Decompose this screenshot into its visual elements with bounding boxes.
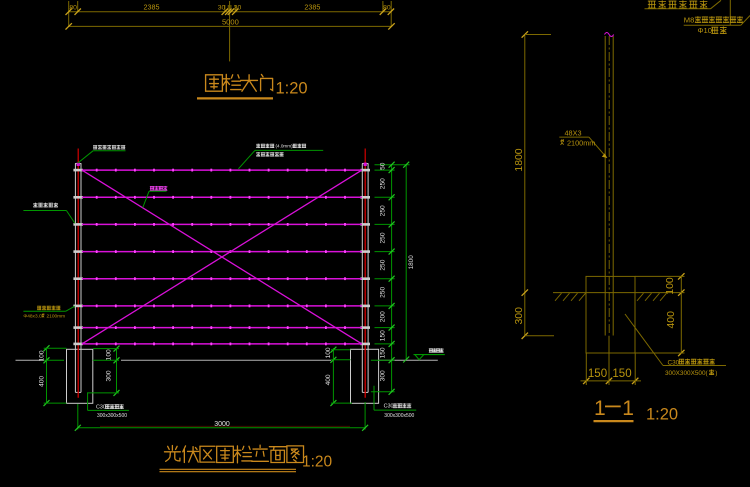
svg-text:5000: 5000	[222, 17, 239, 26]
svg-text:400: 400	[666, 311, 677, 329]
svg-text:300X300X500(: 300X300X500(	[665, 370, 709, 377]
svg-text:Φ48x3.0: Φ48x3.0	[23, 314, 42, 320]
svg-text:M8: M8	[684, 16, 695, 25]
svg-text:150: 150	[588, 368, 607, 380]
svg-text:150: 150	[612, 368, 631, 380]
svg-text:150: 150	[379, 330, 386, 341]
svg-text:2385: 2385	[144, 2, 160, 11]
svg-text:1800: 1800	[514, 148, 525, 171]
svg-text:200: 200	[379, 311, 386, 322]
svg-text:80: 80	[383, 4, 391, 11]
svg-text:2100mm: 2100mm	[567, 138, 595, 147]
svg-text:250: 250	[379, 205, 386, 216]
svg-text:250: 250	[379, 259, 386, 270]
svg-text:250: 250	[379, 232, 386, 243]
svg-text:Φ10: Φ10	[698, 26, 713, 35]
svg-text:2385: 2385	[304, 2, 320, 11]
svg-text:1: 1	[622, 397, 634, 420]
svg-text:1:20: 1:20	[276, 80, 308, 98]
svg-text:300: 300	[514, 307, 525, 325]
svg-text:300: 300	[105, 370, 112, 381]
svg-text:50: 50	[379, 162, 386, 170]
svg-text:1: 1	[594, 397, 606, 420]
svg-text:300x300x500: 300x300x500	[384, 413, 414, 419]
svg-text:): )	[715, 370, 717, 377]
svg-text:3000: 3000	[214, 421, 230, 428]
svg-text:30: 30	[234, 4, 242, 11]
svg-text:100: 100	[39, 350, 46, 361]
svg-text:400: 400	[39, 376, 46, 387]
svg-text:48X3: 48X3	[564, 128, 581, 137]
svg-text:C30: C30	[668, 359, 680, 366]
svg-text:100: 100	[105, 349, 112, 360]
svg-text:100: 100	[665, 277, 676, 295]
svg-text:C30: C30	[384, 404, 394, 410]
svg-text:250: 250	[379, 178, 386, 189]
svg-text:1800: 1800	[408, 255, 415, 270]
svg-text:2100mm: 2100mm	[47, 314, 66, 320]
svg-text:30: 30	[218, 4, 226, 11]
svg-text:C30: C30	[96, 405, 106, 411]
svg-text:80: 80	[69, 4, 77, 11]
svg-text:400: 400	[325, 374, 332, 385]
svg-text:300: 300	[379, 370, 386, 381]
svg-text:150: 150	[379, 347, 386, 358]
svg-text:100: 100	[325, 347, 332, 358]
svg-text:1:20: 1:20	[646, 406, 678, 424]
svg-text:250: 250	[379, 286, 386, 297]
svg-text:(4.0mm): (4.0mm)	[276, 144, 294, 149]
svg-text:1:20: 1:20	[302, 453, 333, 470]
svg-text:300x300x500: 300x300x500	[97, 413, 127, 419]
